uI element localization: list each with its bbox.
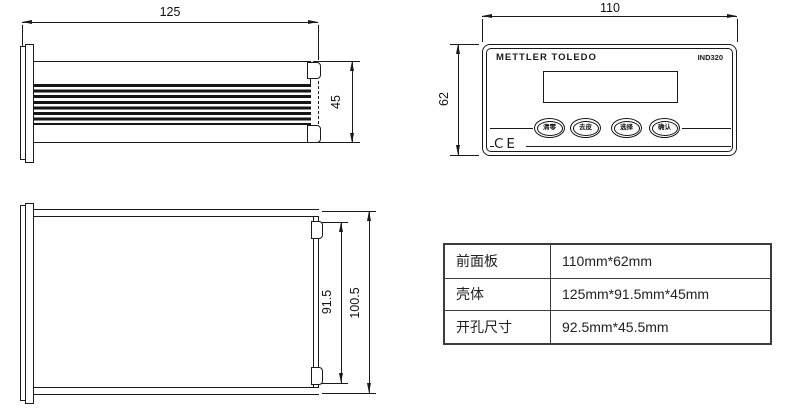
technical-drawing-page: 125 45 110 62: [0, 0, 799, 417]
arrow-down-icon: [350, 133, 354, 143]
button-label: 清零: [543, 125, 556, 132]
bezel-back-face: [25, 44, 34, 163]
arrow-up-icon: [339, 222, 343, 232]
hidden-edge-dashed-line: [318, 81, 319, 124]
dim-label-91-5: 91.5: [320, 284, 334, 320]
model-label: IND320: [698, 53, 723, 62]
housing-rear-wall: [313, 217, 319, 387]
arrow-up-icon: [350, 61, 354, 71]
extension-line: [322, 222, 348, 223]
extension-line: [322, 383, 348, 384]
mounting-clip-top: [311, 221, 323, 239]
zero-button[interactable]: 清零: [534, 118, 565, 138]
spec-row-value: 125mm*91.5mm*45mm: [550, 278, 770, 311]
housing-bottom-rail: [34, 387, 319, 395]
arrow-down-icon: [456, 145, 460, 155]
extension-line: [450, 155, 479, 156]
dim-line-125: [22, 22, 318, 23]
dim-label-45: 45: [329, 87, 343, 117]
arrow-right-icon: [308, 20, 318, 24]
dim-label-110: 110: [580, 1, 640, 15]
arrow-right-icon: [727, 14, 737, 18]
dim-label-100-5: 100.5: [348, 280, 362, 326]
dim-line-110: [482, 16, 737, 17]
dim-label-125: 125: [140, 5, 200, 19]
mounting-clip-bottom: [307, 125, 321, 143]
button-label: 去皮: [579, 125, 592, 132]
extension-line: [482, 19, 483, 42]
mounting-clip-top: [307, 62, 321, 79]
spec-row-value: 92.5mm*45.5mm: [550, 310, 770, 343]
arrow-down-icon: [339, 373, 343, 383]
body-bottom-edge: [34, 142, 311, 143]
extension-line: [737, 19, 738, 42]
spec-row-value: 110mm*62mm: [550, 245, 770, 278]
housing-top-rail: [34, 209, 319, 217]
body-top-edge: [34, 61, 311, 62]
tare-button[interactable]: 去皮: [570, 118, 601, 138]
spec-row-label: 开孔尺寸: [445, 310, 550, 343]
dim-line-45: [352, 61, 353, 143]
enter-button[interactable]: 确认: [649, 118, 680, 138]
button-label: 选择: [620, 125, 633, 132]
display-window: [543, 71, 678, 103]
dim-line-62: [458, 44, 459, 155]
extension-line: [322, 393, 376, 394]
arrow-left-icon: [22, 20, 32, 24]
ce-mark: CE: [494, 136, 518, 152]
arrow-up-icon: [367, 211, 371, 221]
extension-line: [22, 25, 23, 46]
panel-divider-line: [526, 146, 731, 147]
dim-label-62: 62: [437, 85, 451, 113]
panel-divider-line: [490, 128, 533, 129]
extension-line: [318, 25, 319, 60]
dim-line-100-5: [369, 211, 370, 393]
bezel-back-face: [25, 203, 34, 404]
arrow-left-icon: [482, 14, 492, 18]
heatsink-fins: [34, 84, 311, 125]
arrow-down-icon: [367, 383, 371, 393]
arrow-up-icon: [456, 44, 460, 54]
button-label: 确认: [658, 125, 671, 132]
extension-line: [450, 44, 479, 45]
dim-line-91-5: [341, 222, 342, 383]
brand-logo: METTLER TOLEDO: [496, 52, 597, 63]
select-button[interactable]: 选择: [611, 118, 642, 138]
spec-row-label: 前面板: [445, 245, 550, 278]
spec-row-label: 壳体: [445, 278, 550, 311]
spec-table: 前面板 110mm*62mm 壳体 125mm*91.5mm*45mm 开孔尺寸…: [443, 243, 772, 345]
indicator-front-panel: METTLER TOLEDO IND320 清零 去皮 选择 确认: [482, 44, 737, 156]
panel-divider-line: [682, 128, 731, 129]
